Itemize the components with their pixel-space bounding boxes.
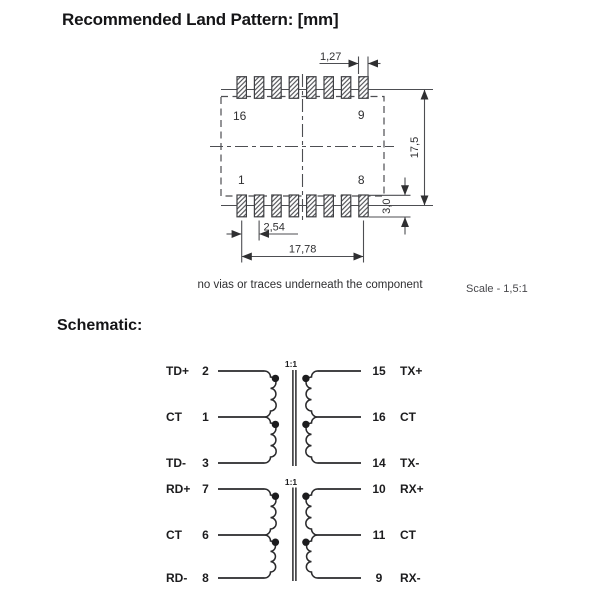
corner-pin-1: 1 [238,173,245,187]
pad [272,195,281,217]
pin-number-16: 16 [372,410,386,424]
pin-number-7: 7 [202,482,209,496]
pin-number-11: 11 [373,528,386,542]
turns-ratio-label: 1:1 [285,477,298,487]
pin-number-6: 6 [202,528,209,542]
pad [307,195,316,217]
pad [324,77,333,99]
pin-label-ct: CT [166,410,183,424]
polarity-dot [272,375,279,382]
pin-number-9: 9 [376,571,383,585]
pad [341,195,350,217]
pin-label-ct: CT [400,410,417,424]
pin-label-ct: CT [166,528,183,542]
corner-pin-8: 8 [358,173,365,187]
pin-label-tdp: TD+ [166,364,189,378]
polarity-dot [302,421,309,428]
pad [237,77,246,99]
pad [324,195,333,217]
dim-value-2-54: 2,54 [264,222,285,234]
polarity-dot [302,375,309,382]
pin-number-15: 15 [372,364,386,378]
polarity-dot [272,539,279,546]
pad [359,77,368,99]
no-vias-note: no vias or traces underneath the compone… [130,279,490,291]
pad [307,77,316,99]
polarity-dot [302,539,309,546]
pad [254,77,263,99]
pin-label-rdm: RD- [166,571,187,585]
pin-label-rxm: RX- [400,571,421,585]
pad [289,77,298,99]
scale-label: Scale - 1,5:1 [466,283,528,295]
land-pattern-and-schematic-drawing: 16 9 1 8 1,27 17,5 3,0 [0,0,600,600]
dim-value-17-78: 17,78 [289,244,317,256]
pin-number-2: 2 [202,364,209,378]
dim-value-3-0: 3,0 [381,199,393,214]
polarity-dot [302,493,309,500]
pad [254,195,263,217]
transformer-2: 1:1 RD+ 7 CT 6 RD- 8 10 RX+ 11 CT 9 RX- [166,477,424,585]
dimension-row-span: 17,78 [242,221,363,263]
pin-number-3: 3 [202,456,209,470]
polarity-dot [272,421,279,428]
pin-label-txm: TX- [400,456,419,470]
pin-number-14: 14 [372,456,386,470]
pad [341,77,350,99]
turns-ratio-label: 1:1 [285,359,298,369]
pin-label-tdm: TD- [166,456,186,470]
corner-pin-16: 16 [233,109,247,123]
pin-number-10: 10 [372,482,386,496]
pad [359,195,368,217]
pin-label-txp: TX+ [400,364,422,378]
dim-value-1-27: 1,27 [320,51,341,63]
land-pattern-drawing: 16 9 1 8 1,27 17,5 3,0 [210,51,433,263]
pin-number-1: 1 [202,410,209,424]
transformer-1: 1:1 TD+ 2 CT 1 TD- 3 15 TX+ 16 CT 14 TX- [166,359,422,470]
pin-label-rdp: RD+ [166,482,190,496]
dim-value-17-5: 17,5 [409,137,421,158]
pin-label-rxp: RX+ [400,482,424,496]
pad [272,77,281,99]
pad [237,195,246,217]
pin-label-ct: CT [400,528,417,542]
pin-number-8: 8 [202,571,209,585]
polarity-dot [272,493,279,500]
schematic-heading: Schematic: [57,317,142,335]
schematic-drawing: 1:1 TD+ 2 CT 1 TD- 3 15 TX+ 16 CT 14 TX- [166,359,424,585]
pad [289,195,298,217]
corner-pin-9: 9 [358,108,365,122]
dimension-overall-height: 17,5 [409,90,425,205]
